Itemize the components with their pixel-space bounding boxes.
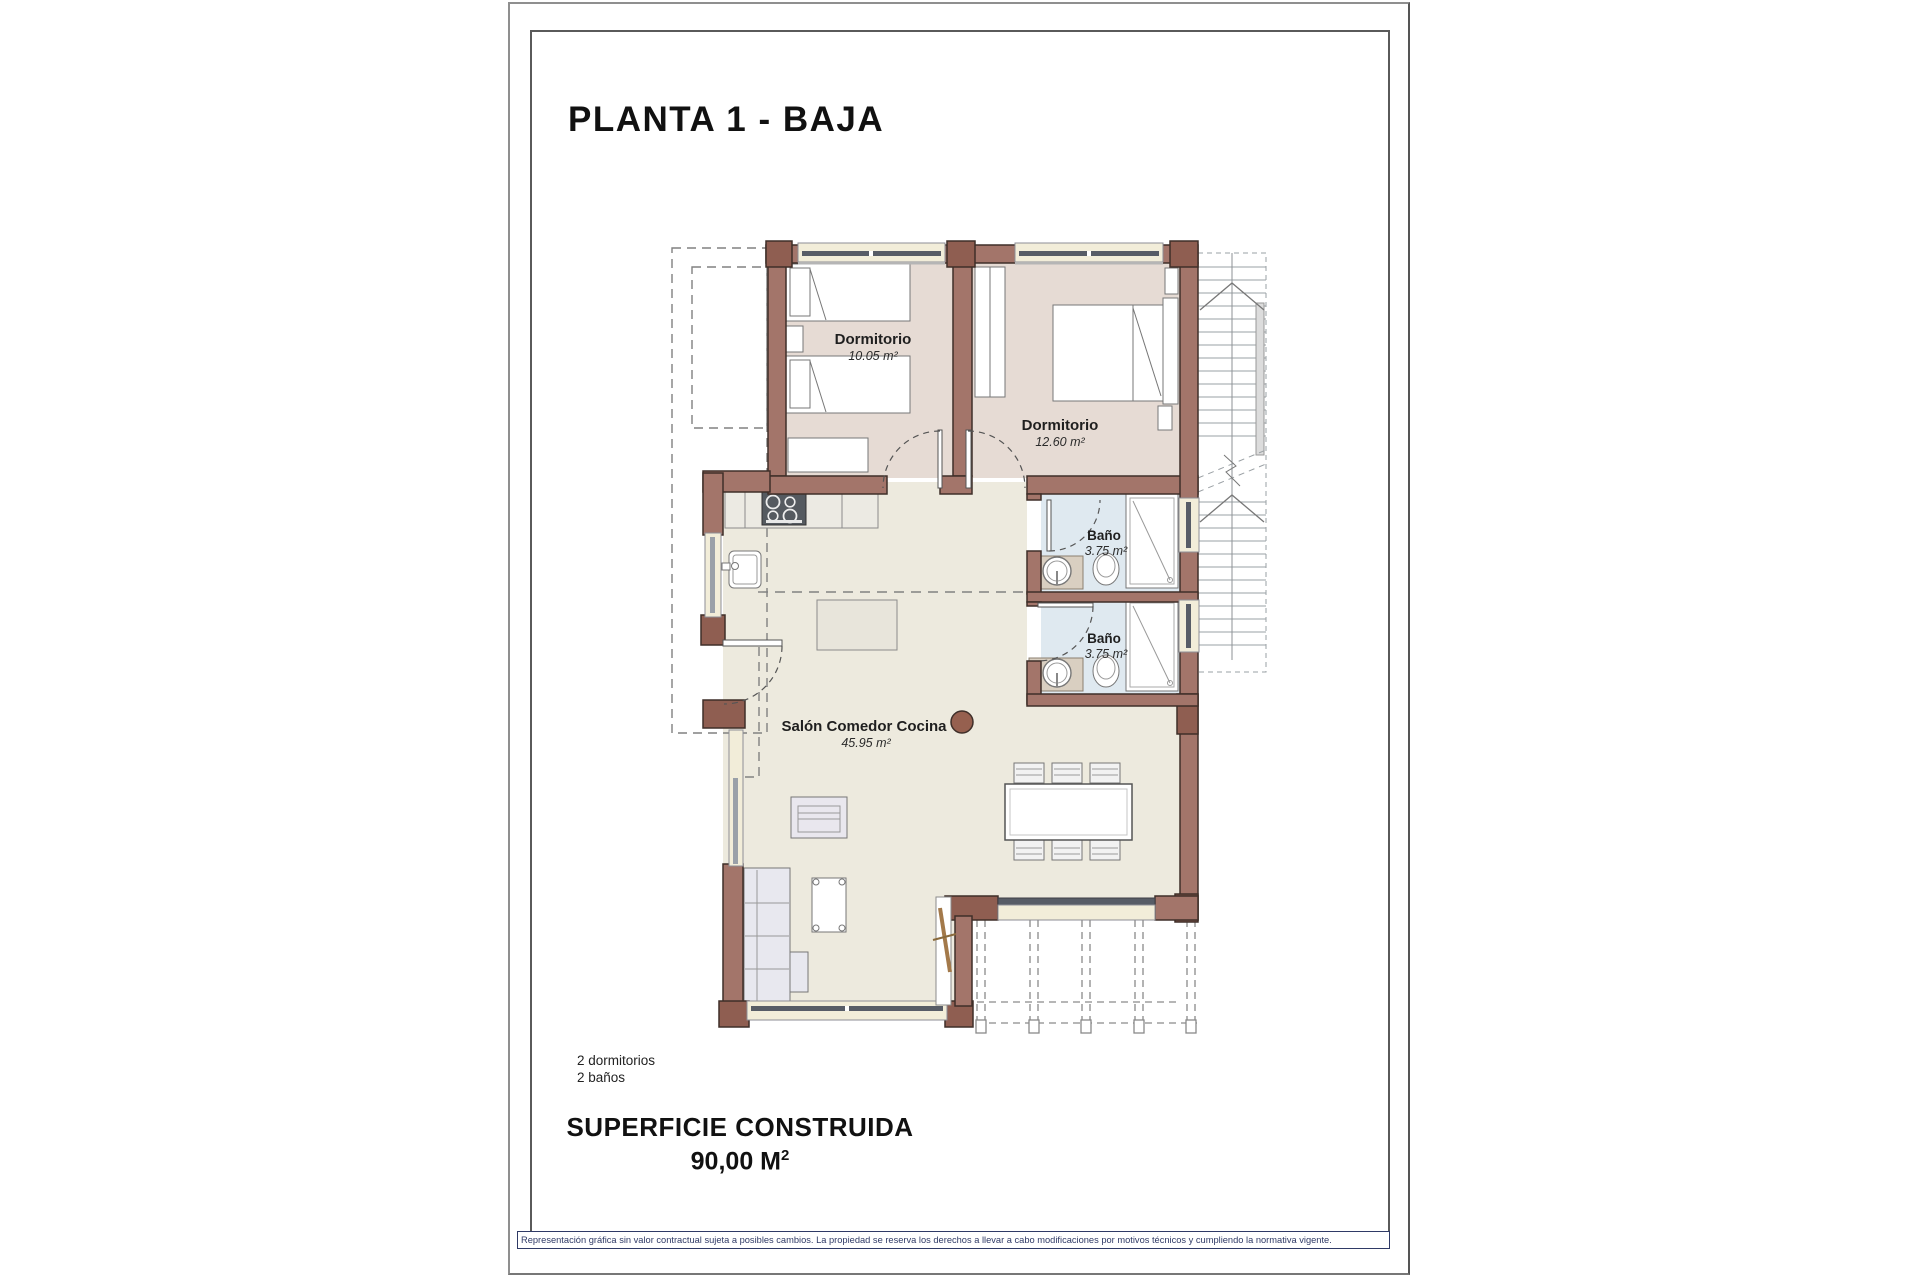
dining-set [1005, 763, 1132, 860]
stool [1158, 406, 1172, 430]
bedroom-2-area: 12.60 m² [1035, 435, 1085, 449]
left-wall-window-2 [729, 730, 743, 866]
living-bottom-window [747, 1001, 947, 1020]
floor-plan-drawing: Dormitorio 10.05 m² Dormitorio 12.60 m² … [0, 0, 1920, 1280]
side-terrace-inner-outline [692, 267, 767, 428]
built-surface-block: SUPERFICIE CONSTRUIDA 90,00 M2 [555, 1112, 925, 1176]
external-stairs [1198, 253, 1266, 672]
legal-disclaimer: Representación gráfica sin valor contrac… [517, 1231, 1390, 1249]
kitchen-island [817, 600, 897, 650]
bathroom-1-area: 3.75 m² [1085, 544, 1128, 558]
room-summary: 2 dormitorios 2 baños [577, 1052, 655, 1086]
built-surface-value: 90,00 M2 [555, 1147, 925, 1176]
nightstand [786, 326, 803, 352]
bedroom-2-window [1015, 243, 1163, 265]
bedroom-2-label: Dormitorio [1022, 417, 1099, 434]
structural-column [951, 711, 973, 733]
living-room-area: 45.95 m² [841, 736, 891, 750]
living-room-label: Salón Comedor Cocina [781, 718, 947, 735]
left-wall-window [705, 533, 721, 617]
coffee-table [812, 878, 846, 932]
headboard [1163, 298, 1178, 404]
sofa-chaise [790, 952, 808, 992]
bedside-shelf [1165, 268, 1178, 294]
summary-bathrooms: 2 baños [577, 1069, 655, 1086]
summary-bedrooms: 2 dormitorios [577, 1052, 655, 1069]
bathroom-2-label: Baño [1087, 631, 1121, 646]
desk [788, 438, 868, 472]
bathroom-1-window [1179, 498, 1199, 552]
surface-number: 90,00 M [691, 1147, 781, 1175]
built-surface-label: SUPERFICIE CONSTRUIDA [555, 1112, 925, 1143]
page-title: PLANTA 1 - BAJA [568, 100, 884, 140]
pergola [953, 920, 1197, 1033]
double-bed [1053, 305, 1163, 401]
bedroom-1-window [798, 243, 945, 265]
surface-exponent: 2 [781, 1147, 789, 1164]
bedroom-1-label: Dormitorio [835, 331, 912, 348]
bathroom-2-window [1179, 600, 1199, 652]
bedroom-1-area: 10.05 m² [848, 349, 898, 363]
bathroom-1-label: Baño [1087, 528, 1121, 543]
floorplan-page: Dormitorio 10.05 m² Dormitorio 12.60 m² … [0, 0, 1920, 1280]
dining-window [998, 898, 1155, 920]
bathroom-2-area: 3.75 m² [1085, 647, 1128, 661]
dining-table [1005, 784, 1132, 840]
